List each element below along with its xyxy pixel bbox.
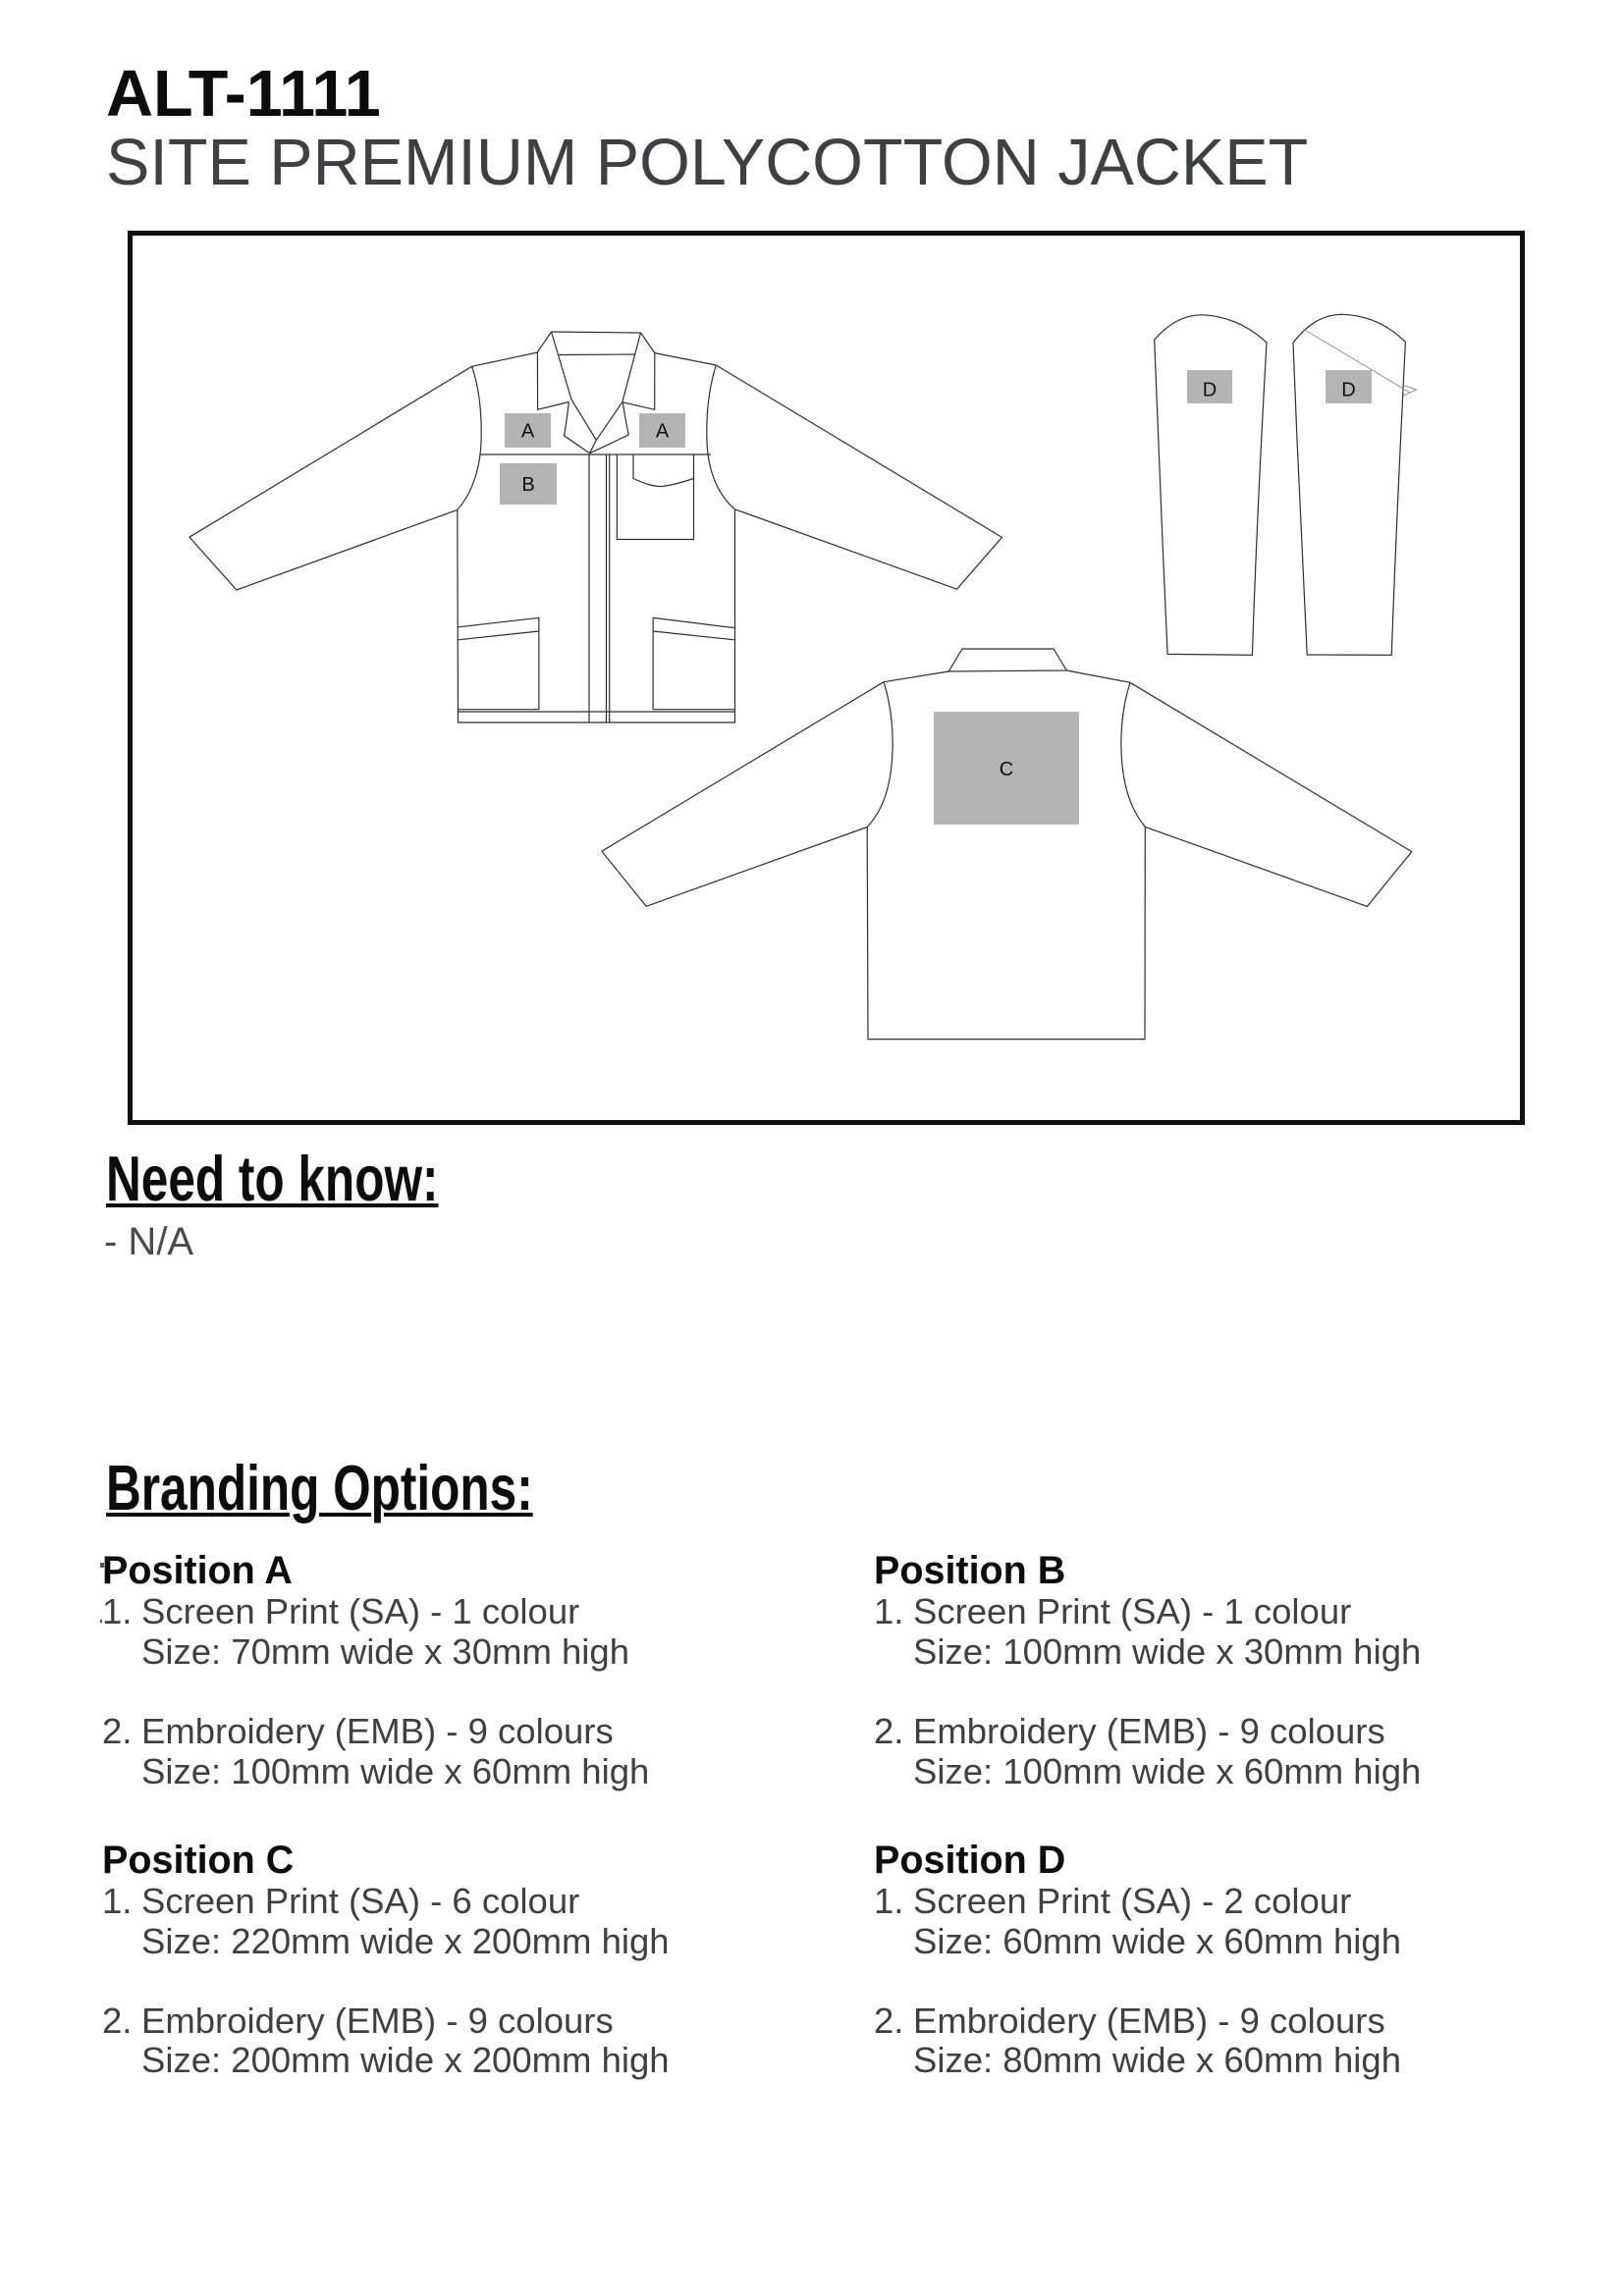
svg-text:A: A — [521, 421, 535, 443]
svg-text:B: B — [521, 474, 534, 496]
svg-text:A: A — [656, 421, 670, 443]
svg-text:D: D — [1203, 380, 1217, 401]
svg-text:D: D — [1341, 380, 1355, 401]
svg-text:C: C — [1000, 759, 1013, 780]
